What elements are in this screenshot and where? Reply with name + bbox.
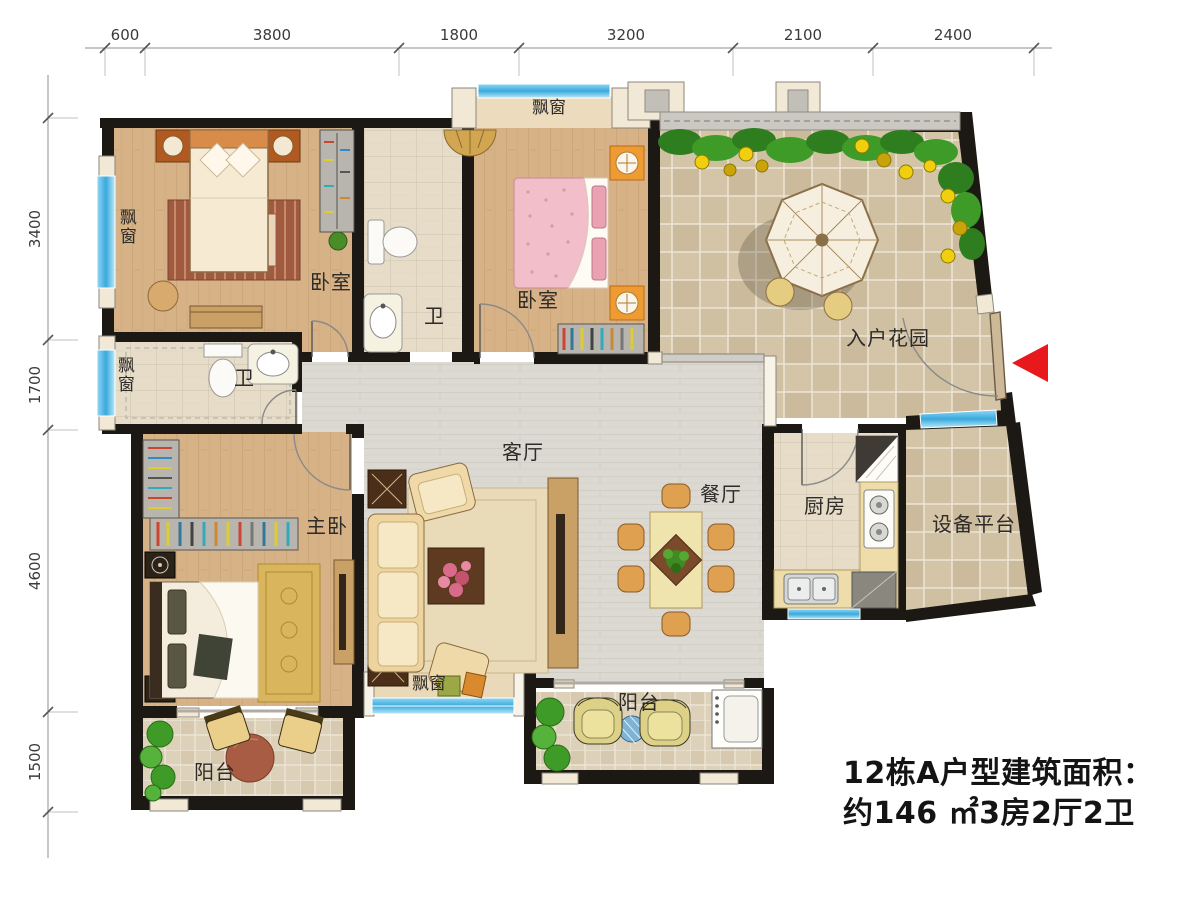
dresser (190, 306, 262, 328)
label-bath1: 卫 (424, 306, 445, 327)
dim-left-1500: 1500 (28, 743, 44, 781)
label-balcony1: 阳台 (194, 762, 236, 783)
label-living-room: 客厅 (502, 442, 544, 463)
label-bedroom1: 卧室 (310, 272, 352, 293)
dim-left-3400: 3400 (28, 210, 44, 248)
label-bay-window-left-mid: 飘窗 (114, 356, 132, 394)
garden-railing (645, 90, 960, 130)
plant (329, 232, 347, 250)
kitchen-window (788, 609, 860, 619)
chair (574, 698, 622, 744)
toilet-icon (204, 344, 242, 357)
living-furniture (368, 461, 578, 697)
title-line2: 约146 ㎡3房2厅2卫 (843, 788, 1135, 832)
dim-left-4600: 4600 (28, 552, 44, 590)
dim-left-1700: 1700 (28, 366, 44, 404)
tv (556, 514, 565, 634)
label-bay-window-left-top: 飘窗 (116, 208, 134, 246)
dim-top-3200: 3200 (607, 28, 645, 44)
garden-stool (824, 292, 852, 320)
label-bath2: 卫 (234, 368, 255, 389)
floorplan-page: 600 3800 1800 3200 2100 2400 3400 1700 4… (0, 0, 1200, 900)
toilet-icon (368, 220, 384, 264)
bay-cushion (462, 672, 486, 698)
label-balcony2: 阳台 (618, 692, 660, 713)
label-bedroom2: 卧室 (517, 290, 559, 311)
dim-top-3800: 3800 (253, 28, 291, 44)
label-kitchen: 厨房 (804, 496, 846, 517)
label-dining-room: 餐厅 (700, 484, 742, 505)
label-entry-garden: 入户花园 (846, 328, 930, 349)
gold-rug (258, 564, 320, 702)
label-bay-window-bottom: 飘窗 (412, 676, 446, 694)
stool (148, 281, 178, 311)
dim-top-1800: 1800 (440, 28, 478, 44)
dim-top-2400: 2400 (934, 28, 972, 44)
title-line1: 12栋A户型建筑面积： (843, 748, 1153, 792)
label-master-bedroom: 主卧 (306, 516, 348, 537)
bay-window-top (478, 84, 610, 98)
bay-window-left-mid (97, 350, 115, 416)
entry-arrow-icon (1012, 344, 1048, 382)
tv (339, 574, 346, 650)
label-equipment-platform: 设备平台 (932, 514, 1016, 535)
garden-stool (766, 278, 794, 306)
dim-top-2100: 2100 (784, 28, 822, 44)
garden-passage-threshold (662, 354, 764, 362)
dim-top-600: 600 (111, 28, 140, 44)
bay-window-left-top (97, 176, 115, 288)
label-bay-window-top: 飘窗 (532, 100, 566, 118)
